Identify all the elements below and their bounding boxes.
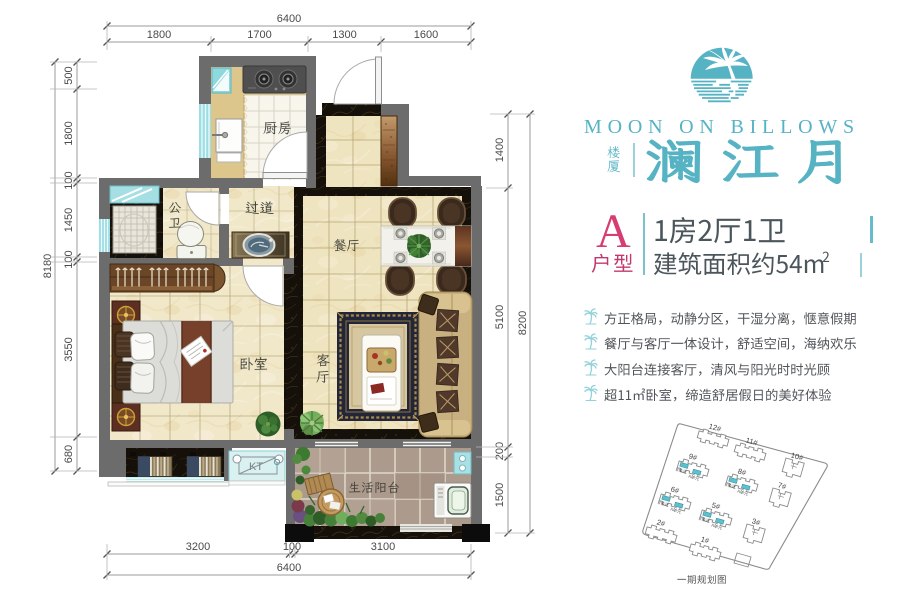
svg-text:1500: 1500 [494,483,506,507]
svg-text:A: A [596,205,631,258]
svg-text:3100: 3100 [371,541,395,553]
svg-text:6400: 6400 [277,562,301,574]
svg-text:5100: 5100 [494,305,506,329]
svg-text:200: 200 [494,442,506,460]
svg-text:3550: 3550 [63,337,75,361]
svg-text:1400: 1400 [494,138,506,162]
svg-text:100: 100 [283,541,301,553]
svg-text:500: 500 [63,66,75,84]
svg-text:8180: 8180 [42,254,54,278]
svg-text:100: 100 [63,250,75,268]
svg-text:1800: 1800 [63,121,75,145]
svg-text:8200: 8200 [517,311,529,335]
svg-text:1700: 1700 [247,29,271,41]
svg-text:680: 680 [63,445,75,463]
svg-text:3200: 3200 [186,541,210,553]
svg-text:1600: 1600 [414,29,438,41]
svg-text:1800: 1800 [147,29,171,41]
svg-text:6400: 6400 [277,13,301,25]
svg-text:1300: 1300 [332,29,356,41]
svg-text:KT: KT [249,461,263,473]
svg-text:100: 100 [63,171,75,189]
svg-text:MOON ON BILLOWS: MOON ON BILLOWS [584,116,860,138]
svg-text:1450: 1450 [63,208,75,232]
